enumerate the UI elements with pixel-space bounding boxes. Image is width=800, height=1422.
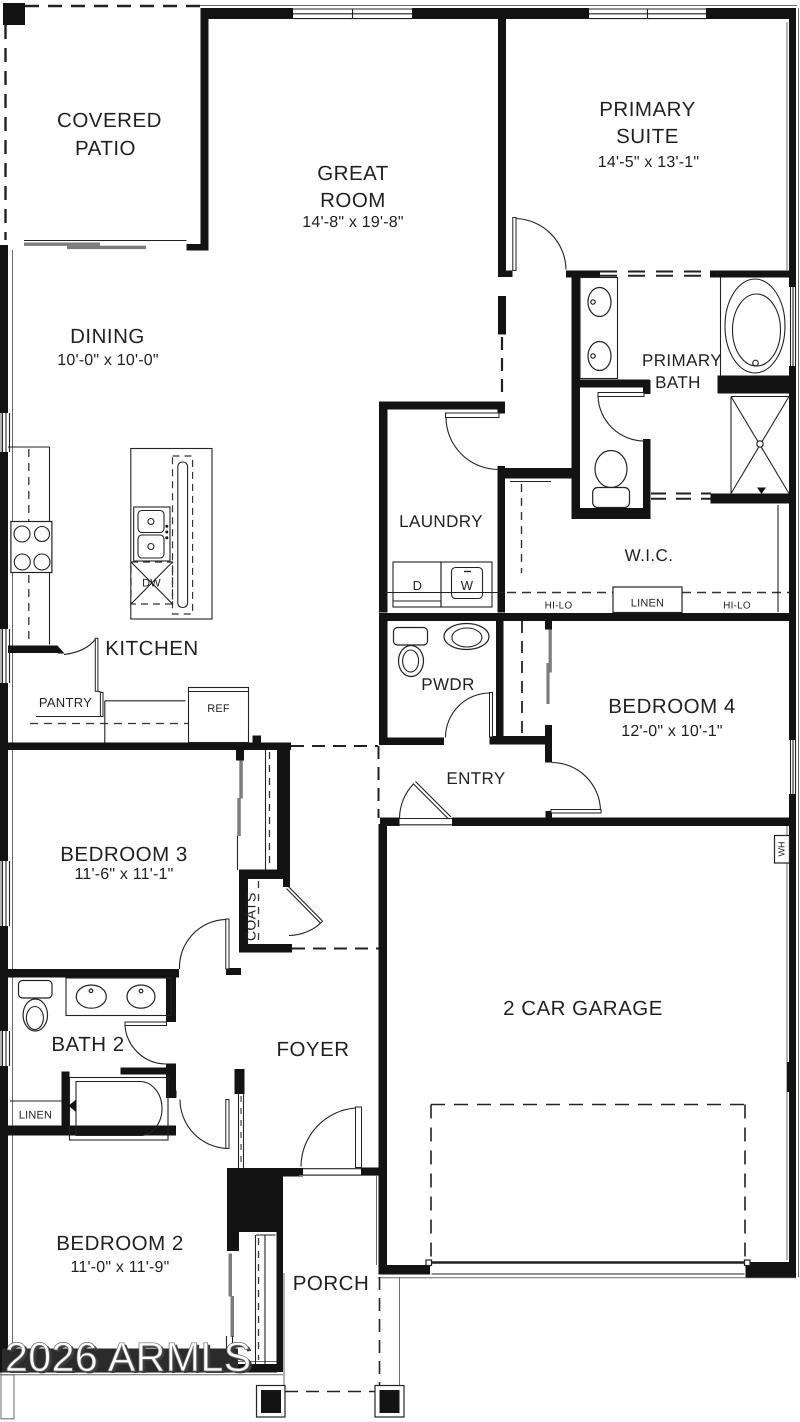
svg-text:REF: REF (207, 703, 230, 715)
svg-text:LAUNDRY: LAUNDRY (399, 512, 483, 531)
svg-text:2 CAR GARAGE: 2 CAR GARAGE (503, 997, 663, 1020)
svg-text:14'-5" x 13'-1": 14'-5" x 13'-1" (598, 154, 699, 171)
svg-text:10'-0" x 10'-0": 10'-0" x 10'-0" (57, 352, 158, 369)
svg-text:PRIMARY: PRIMARY (642, 351, 722, 370)
svg-text:DINING: DINING (70, 325, 145, 348)
svg-text:HI-LO: HI-LO (723, 601, 751, 612)
svg-text:2026 ARMLS: 2026 ARMLS (5, 1334, 252, 1380)
svg-text:COVERED: COVERED (57, 109, 162, 132)
svg-text:PWDR: PWDR (421, 675, 475, 694)
svg-text:PANTRY: PANTRY (39, 695, 92, 710)
svg-text:11'-6" x 11'-1": 11'-6" x 11'-1" (74, 866, 173, 883)
svg-text:ROOM: ROOM (320, 189, 386, 212)
svg-text:KITCHEN: KITCHEN (105, 637, 198, 660)
svg-text:HI-LO: HI-LO (545, 601, 573, 612)
svg-text:PRIMARY: PRIMARY (599, 98, 696, 121)
svg-text:LINEN: LINEN (19, 1110, 52, 1122)
svg-text:DW: DW (142, 578, 161, 590)
svg-text:BEDROOM 4: BEDROOM 4 (608, 695, 736, 718)
svg-text:14'-8" x 19'-8": 14'-8" x 19'-8" (302, 214, 403, 231)
svg-text:FOYER: FOYER (276, 1038, 349, 1061)
svg-text:D: D (413, 578, 423, 593)
svg-text:WH: WH (777, 842, 787, 857)
svg-text:LINEN: LINEN (631, 598, 664, 610)
svg-text:PORCH: PORCH (293, 1272, 370, 1295)
svg-text:ENTRY: ENTRY (446, 769, 505, 788)
svg-text:BEDROOM 2: BEDROOM 2 (56, 1232, 184, 1255)
svg-text:BATH 2: BATH 2 (51, 1033, 124, 1056)
svg-text:BEDROOM 3: BEDROOM 3 (60, 843, 188, 866)
svg-text:W.I.C.: W.I.C. (625, 546, 674, 565)
svg-text:12'-0" x 10'-1": 12'-0" x 10'-1" (621, 723, 722, 740)
svg-text:11'-0" x 11'-9": 11'-0" x 11'-9" (70, 1259, 169, 1276)
svg-text:W: W (461, 578, 474, 593)
svg-text:COATS: COATS (243, 892, 259, 941)
svg-text:GREAT: GREAT (317, 162, 389, 185)
svg-text:PATIO: PATIO (75, 137, 136, 160)
svg-text:BATH: BATH (655, 373, 701, 392)
svg-text:SUITE: SUITE (616, 125, 679, 148)
